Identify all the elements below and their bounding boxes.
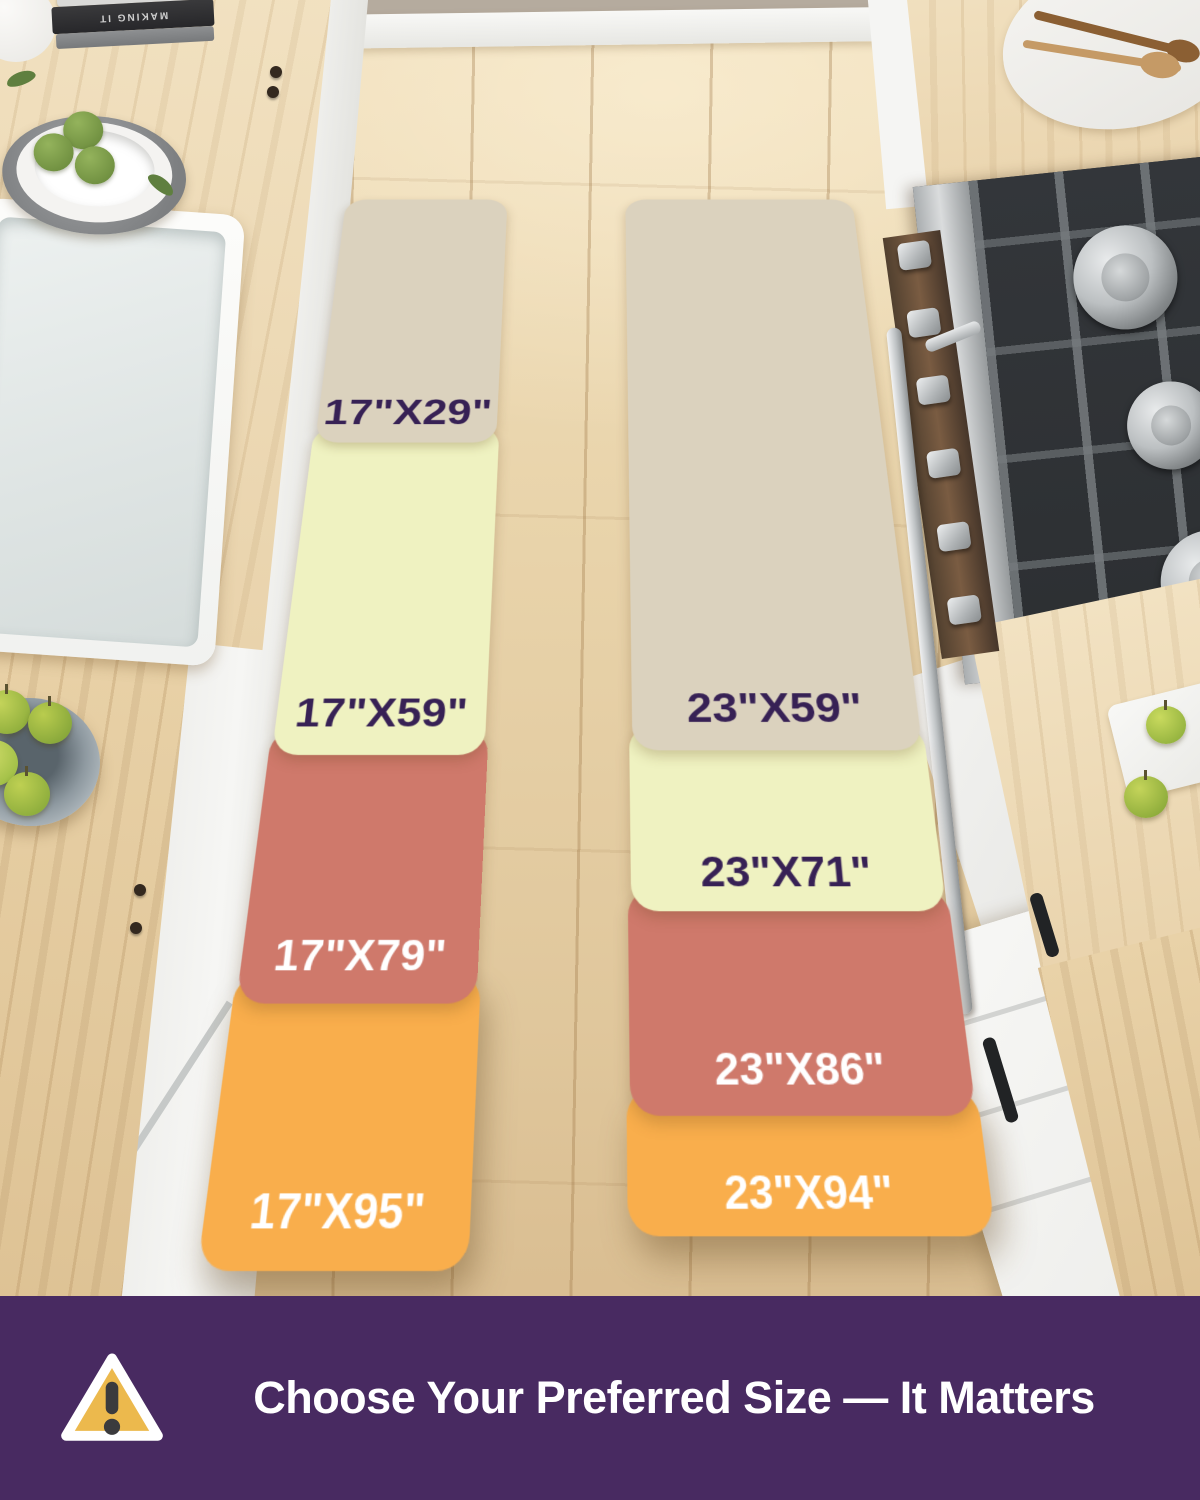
mat-17x29: 17"X29" xyxy=(315,200,508,443)
mat-17x79: 17"X79" xyxy=(236,729,489,1003)
mat-size-label: 17"X59" xyxy=(293,690,469,737)
mat-size-label: 17"X29" xyxy=(322,392,494,432)
bottom-banner: Choose Your Preferred Size — It Matters xyxy=(0,1296,1200,1500)
mat-17x95: 17"X95" xyxy=(197,972,481,1271)
kitchen-scene: MAKING IT xyxy=(0,0,1200,1500)
banner-message: Choose Your Preferred Size — It Matters xyxy=(206,1372,1142,1424)
size-comparison-overlay: 17"X29" 17"X59" 17"X79" 17"X95" 23"X59" … xyxy=(0,0,1200,1300)
mat-23x71: 23"X71" xyxy=(629,725,947,912)
mat-17x59: 17"X59" xyxy=(272,427,500,755)
mat-23x86: 23"X86" xyxy=(628,888,977,1116)
mat-23x59: 23"X59" xyxy=(625,200,922,751)
mat-size-label: 17"X79" xyxy=(271,930,448,981)
mat-size-label: 23"X59" xyxy=(686,684,865,732)
mat-size-label: 23"X71" xyxy=(700,848,875,897)
mat-size-label: 23"X94" xyxy=(723,1167,896,1221)
mat-size-label: 17"X95" xyxy=(247,1186,427,1242)
mat-size-label: 23"X86" xyxy=(714,1045,888,1097)
runner-column-17in: 17"X29" 17"X59" 17"X79" 17"X95" xyxy=(201,200,515,1242)
warning-triangle-icon xyxy=(58,1349,166,1447)
runner-column-23in: 23"X59" 23"X71" 23"X86" 23"X94" xyxy=(618,200,994,1221)
